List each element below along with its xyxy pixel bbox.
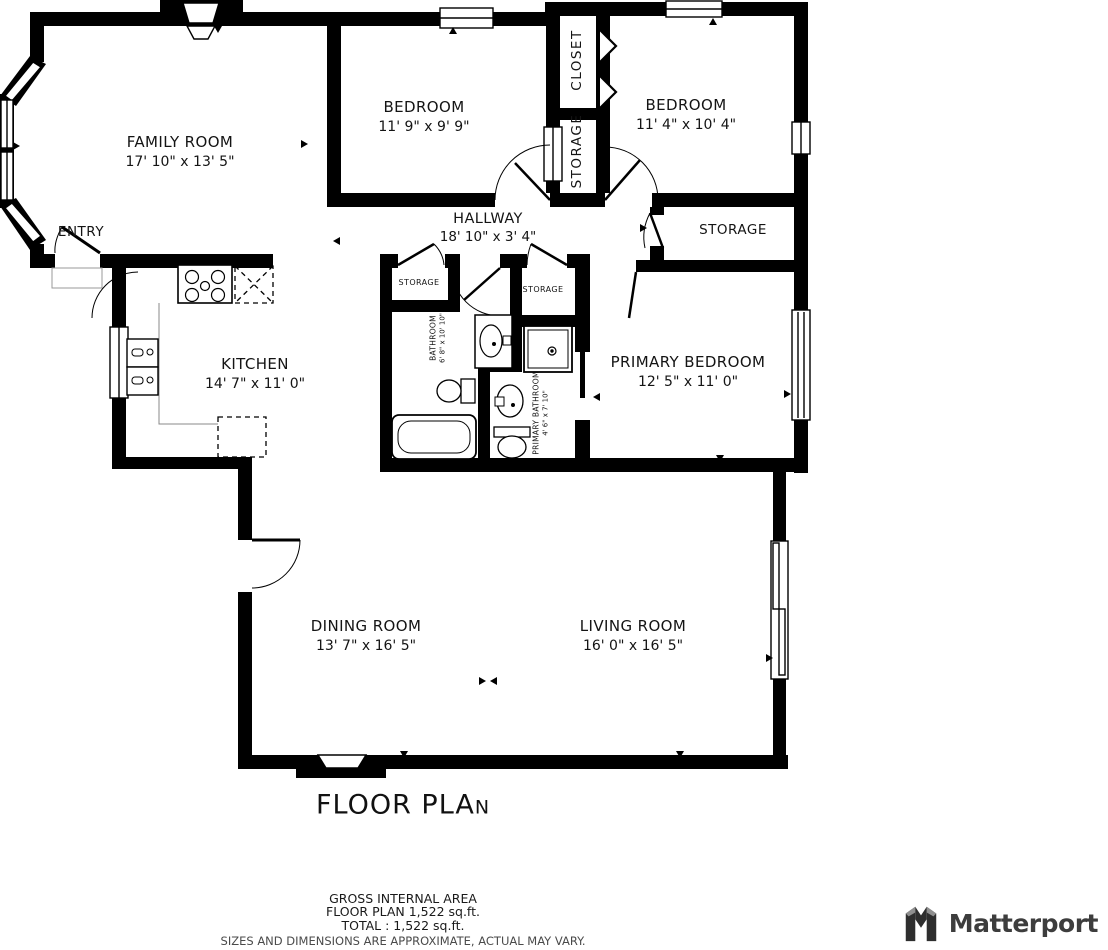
room-name: BEDROOM bbox=[378, 98, 469, 118]
room-name: DINING ROOM bbox=[311, 617, 422, 637]
island-dashed-icon bbox=[218, 417, 266, 457]
room-label-closet: CLOSET bbox=[569, 29, 587, 90]
room-dims: 14' 7" x 11' 0" bbox=[205, 375, 305, 393]
room-label-storage-right: STORAGE bbox=[699, 222, 767, 240]
room-dims: 12' 5" x 11' 0" bbox=[611, 373, 766, 391]
room-dims: 18' 10" x 3' 4" bbox=[440, 229, 537, 247]
room-name: LIVING ROOM bbox=[580, 617, 686, 637]
bathtub-icon bbox=[392, 415, 476, 459]
dining-room-door bbox=[252, 540, 300, 588]
room-name: STORAGE bbox=[569, 114, 587, 189]
toilet2-icon bbox=[494, 427, 530, 458]
area-summary: GROSS INTERNAL AREA FLOOR PLAN 1,522 sq.… bbox=[221, 892, 586, 948]
room-label-bedroom-top-middle: BEDROOM 11' 9" x 9' 9" bbox=[378, 98, 469, 136]
page-title-small: N bbox=[475, 797, 490, 819]
floor-plan-area: FLOOR PLAN 1,522 sq.ft. bbox=[221, 905, 586, 918]
floor-plan-page: FAMILY ROOM 17' 10" x 13' 5" ENTRY BEDRO… bbox=[0, 0, 1108, 950]
appliance-stack-icon bbox=[127, 339, 158, 395]
room-dims: 4' 6" x 7' 10" bbox=[541, 371, 550, 454]
room-label-family-room: FAMILY ROOM 17' 10" x 13' 5" bbox=[125, 133, 234, 171]
room-dims: 17' 10" x 13' 5" bbox=[125, 153, 234, 171]
room-dims: 11' 9" x 9' 9" bbox=[378, 118, 469, 136]
room-name: STORAGE bbox=[523, 285, 564, 295]
matterport-m-icon bbox=[902, 903, 940, 943]
room-label-storage-strip: STORAGE bbox=[569, 114, 587, 189]
room-label-storage-hall-2: STORAGE bbox=[523, 285, 564, 295]
shower-icon bbox=[524, 326, 572, 372]
bedroom1-door bbox=[495, 145, 550, 200]
room-name: FAMILY ROOM bbox=[125, 133, 234, 153]
page-title: FLOOR PLAN bbox=[316, 790, 490, 821]
front-step bbox=[318, 755, 366, 768]
room-name: BEDROOM bbox=[636, 96, 736, 116]
room-label-kitchen: KITCHEN 14' 7" x 11' 0" bbox=[205, 355, 305, 393]
disclaimer-text: SIZES AND DIMENSIONS ARE APPROXIMATE, AC… bbox=[221, 934, 586, 948]
room-dims: 6' 8" x 10' 10" bbox=[438, 313, 447, 363]
page-title-main: FLOOR PLA bbox=[316, 790, 475, 821]
refrigerator-dashed-icon bbox=[235, 266, 273, 303]
room-name: PRIMARY BATHROOM bbox=[532, 371, 542, 454]
hall-storage1-door bbox=[398, 244, 444, 265]
room-label-storage-hall-1: STORAGE bbox=[399, 278, 440, 288]
primary-bedroom-window bbox=[792, 310, 810, 420]
room-label-bedroom-top-right: BEDROOM 11' 4" x 10' 4" bbox=[636, 96, 736, 134]
matterport-logo: Matterport bbox=[902, 903, 1098, 943]
room-label-entry: ENTRY bbox=[58, 224, 104, 242]
entry-landing bbox=[52, 268, 102, 288]
storage-right-door bbox=[644, 213, 663, 248]
room-name: KITCHEN bbox=[205, 355, 305, 375]
fixtures bbox=[127, 265, 572, 459]
room-name: HALLWAY bbox=[440, 210, 537, 229]
room-label-living-room: LIVING ROOM 16' 0" x 16' 5" bbox=[580, 617, 686, 655]
bathroom-vanity-icon bbox=[475, 315, 512, 368]
total-area: TOTAL : 1,522 sq.ft. bbox=[221, 919, 586, 932]
room-name: STORAGE bbox=[699, 222, 767, 240]
gross-area-label: GROSS INTERNAL AREA bbox=[221, 892, 586, 905]
room-dims: 16' 0" x 16' 5" bbox=[580, 637, 686, 655]
pedestal-sink-icon bbox=[495, 385, 523, 417]
toilet-icon bbox=[437, 379, 475, 403]
room-label-bathroom: BATHROOM 6' 8" x 10' 10" bbox=[429, 313, 448, 363]
chimney-window bbox=[183, 3, 219, 23]
hall-storage2-door bbox=[527, 244, 567, 265]
room-name: PRIMARY BEDROOM bbox=[611, 353, 766, 373]
room-dims: 11' 4" x 10' 4" bbox=[636, 116, 736, 134]
room-label-dining-room: DINING ROOM 13' 7" x 16' 5" bbox=[311, 617, 422, 655]
room-label-primary-bedroom: PRIMARY BEDROOM 12' 5" x 11' 0" bbox=[611, 353, 766, 391]
room-label-hallway: HALLWAY 18' 10" x 3' 4" bbox=[440, 210, 537, 246]
room-name: BATHROOM bbox=[429, 313, 439, 363]
room-name: STORAGE bbox=[399, 278, 440, 288]
room-name: CLOSET bbox=[569, 29, 587, 90]
room-label-primary-bathroom: PRIMARY BATHROOM 4' 6" x 7' 10" bbox=[532, 371, 551, 454]
fireplace-hearth bbox=[187, 26, 215, 39]
stove-icon bbox=[178, 265, 232, 303]
room-dims: 13' 7" x 16' 5" bbox=[311, 637, 422, 655]
room-name: ENTRY bbox=[58, 224, 104, 242]
matterport-wordmark: Matterport bbox=[949, 909, 1098, 938]
bedroom2-door bbox=[605, 147, 658, 200]
